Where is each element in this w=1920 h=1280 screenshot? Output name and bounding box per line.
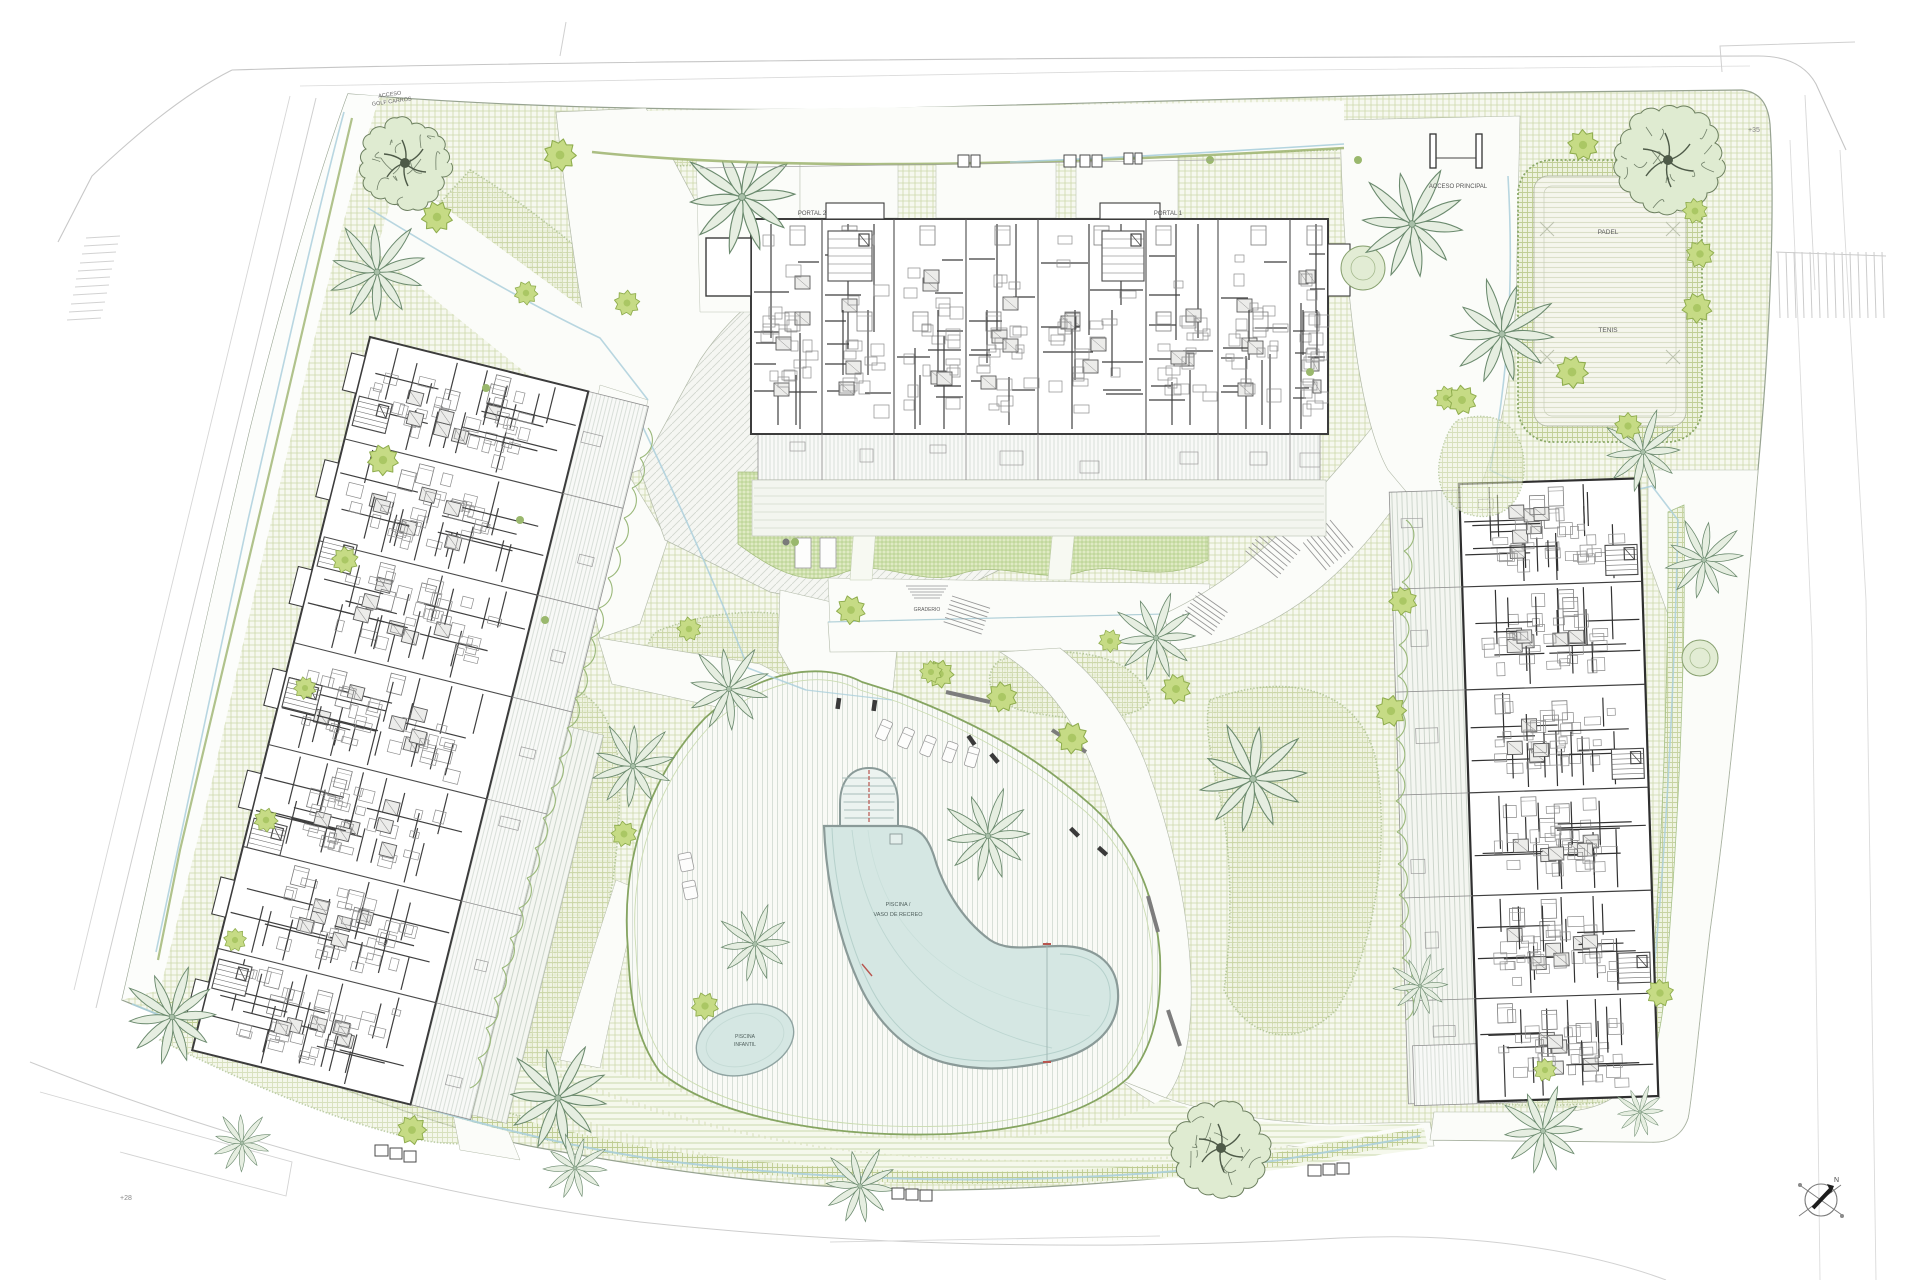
svg-text:+28: +28 bbox=[120, 1195, 132, 1202]
svg-text:PORTAL 2: PORTAL 2 bbox=[798, 211, 827, 217]
svg-text:PISCINA: PISCINA bbox=[735, 1034, 756, 1040]
svg-text:PADEL: PADEL bbox=[1598, 229, 1619, 236]
svg-text:+35: +35 bbox=[1748, 127, 1760, 134]
svg-text:GRADERIO: GRADERIO bbox=[914, 607, 941, 613]
svg-text:VASO DE RECREO: VASO DE RECREO bbox=[873, 912, 923, 918]
svg-text:ACCESO PRINCIPAL: ACCESO PRINCIPAL bbox=[1429, 184, 1488, 190]
svg-text:N: N bbox=[1834, 1177, 1839, 1184]
svg-text:PORTAL 1: PORTAL 1 bbox=[1154, 211, 1183, 217]
svg-text:INFANTIL: INFANTIL bbox=[734, 1042, 756, 1048]
svg-text:PISCINA /: PISCINA / bbox=[886, 902, 911, 908]
svg-text:TENIS: TENIS bbox=[1598, 327, 1618, 334]
